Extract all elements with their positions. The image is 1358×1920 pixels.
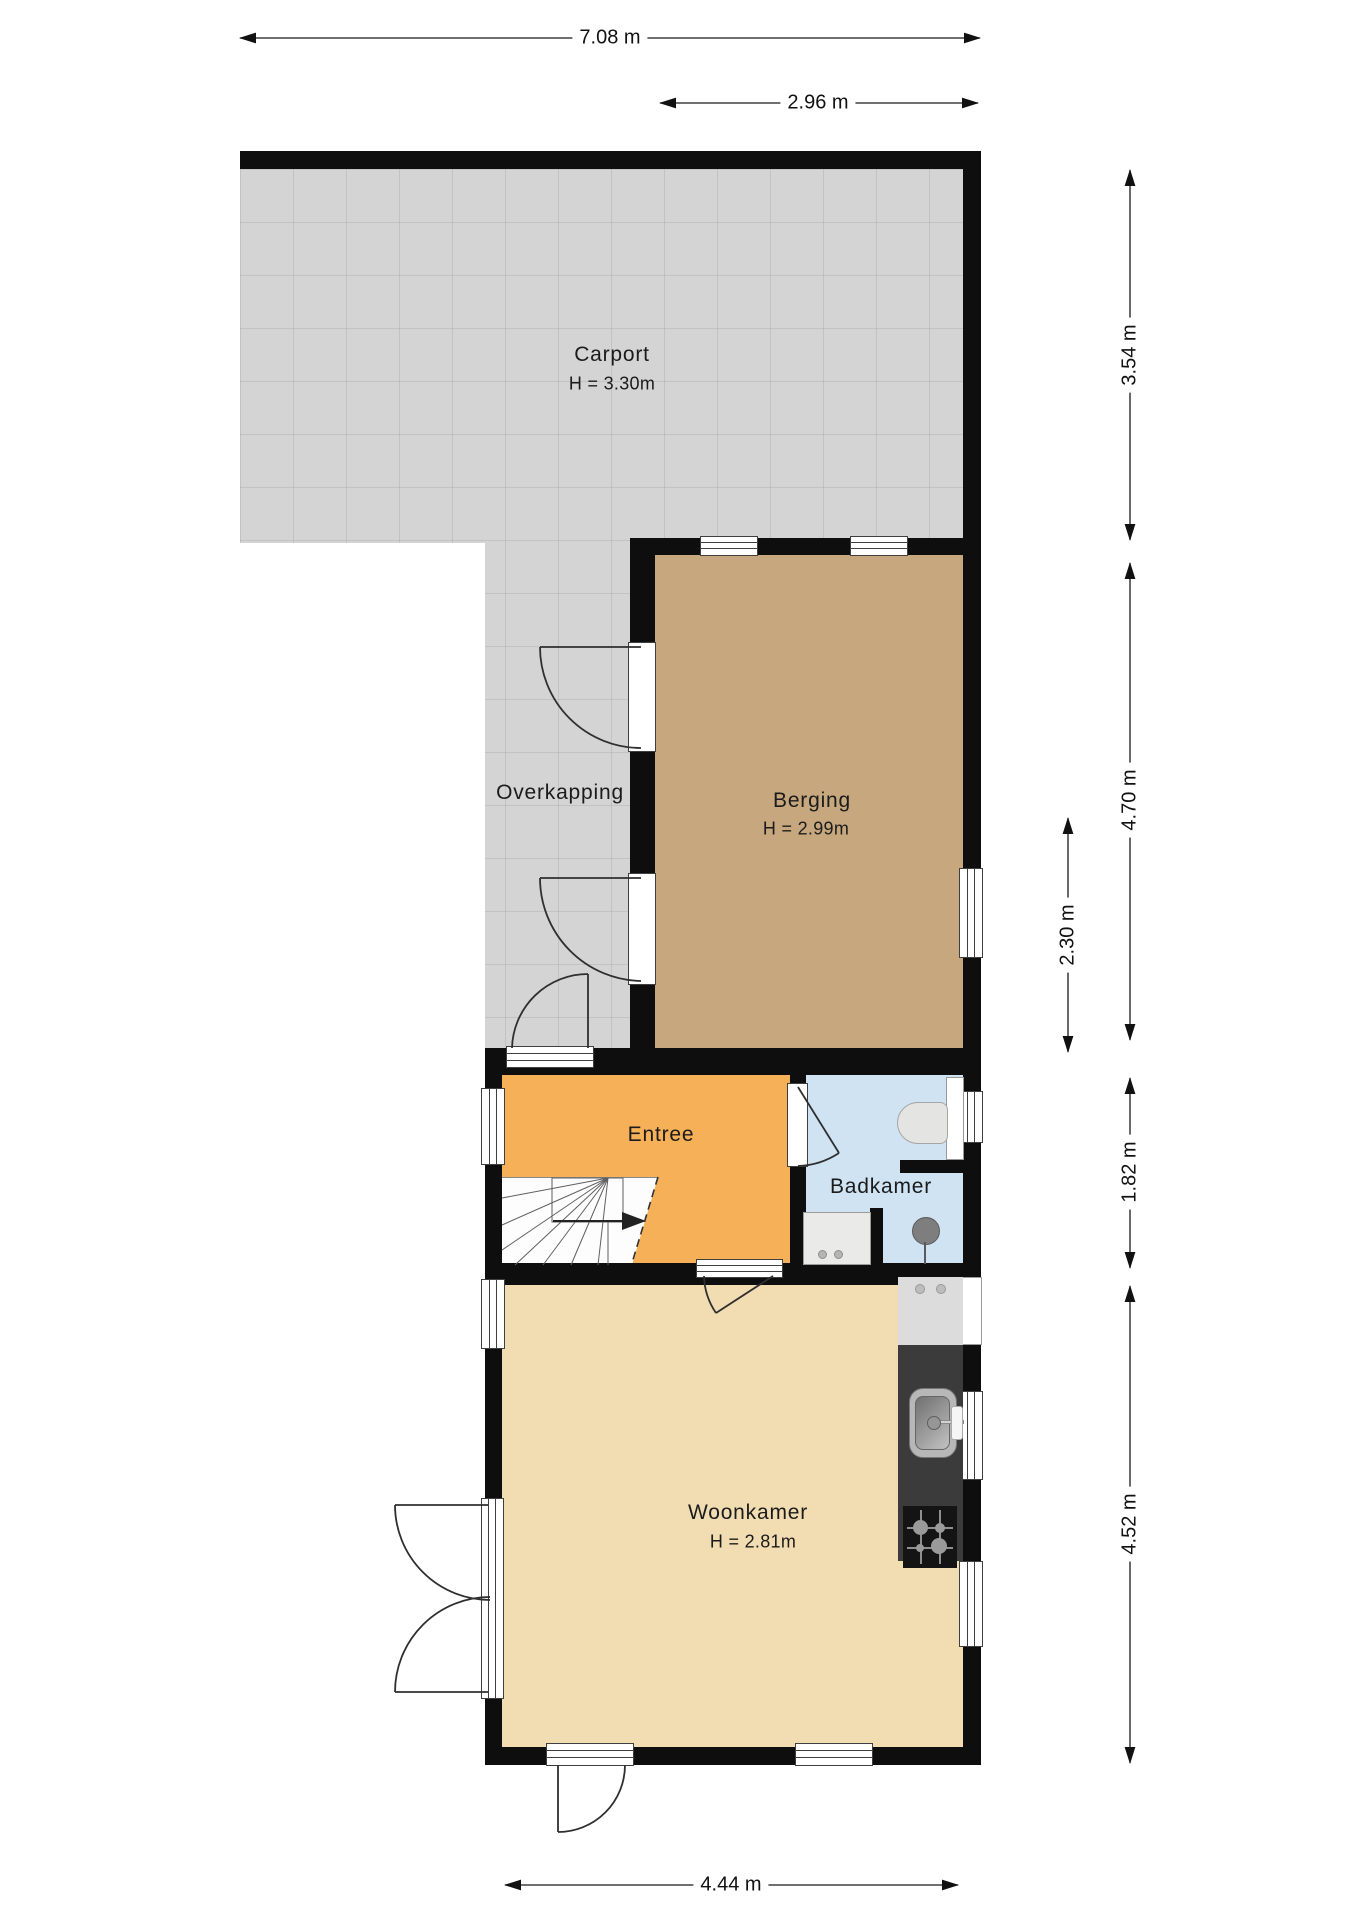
dim-woonkamer-depth: 4.52 m bbox=[1119, 1486, 1142, 1561]
toilet-cistern bbox=[946, 1077, 964, 1160]
stove-burner-1 bbox=[913, 1520, 928, 1535]
label-woonkamer: Woonkamer bbox=[688, 1501, 808, 1525]
label-entree: Entree bbox=[628, 1123, 695, 1147]
kitchen-faucet-dot-2 bbox=[936, 1284, 946, 1294]
wall-sink-stub bbox=[870, 1208, 883, 1265]
door-frame-front bbox=[506, 1046, 594, 1068]
door-frame-badkamer bbox=[787, 1083, 808, 1167]
dim-berging-depth: 4.70 m bbox=[1119, 762, 1142, 837]
dim-berging-inner: 2.30 m bbox=[1057, 897, 1080, 972]
wall-berging-left bbox=[630, 538, 655, 1075]
double-door-swing bbox=[395, 1505, 490, 1692]
door-frame-berging-1 bbox=[628, 642, 656, 752]
wall-top bbox=[240, 151, 981, 169]
door-woonkamer-bottom-swing bbox=[558, 1765, 625, 1832]
kitchen-faucet-icon bbox=[927, 1416, 941, 1430]
toilet-bowl-icon bbox=[897, 1102, 948, 1144]
window-woonkamer-bottom bbox=[795, 1743, 873, 1766]
stove-burner-4 bbox=[931, 1538, 947, 1554]
washbasin-faucet-1 bbox=[818, 1250, 827, 1259]
stove-grate-v1 bbox=[920, 1510, 922, 1564]
dim-total-width: 7.08 m bbox=[572, 27, 647, 50]
door-frame-double-doors bbox=[481, 1498, 504, 1699]
window-woonkamer-right bbox=[959, 1561, 983, 1647]
window-berging-top-1 bbox=[700, 536, 758, 556]
stove-icon bbox=[903, 1506, 957, 1568]
floorplan: 7.08 m 2.96 m 3.54 m 4.70 m 2.30 m 1.82 … bbox=[0, 0, 1358, 1920]
kitchen-faucet-dot-1 bbox=[915, 1284, 925, 1294]
kitchen-faucet-bracket bbox=[951, 1406, 963, 1440]
window-berging-top-2 bbox=[850, 536, 908, 556]
window-berging-right bbox=[959, 868, 983, 958]
kitchen-counter-light bbox=[898, 1277, 963, 1345]
washbasin-faucet-2 bbox=[834, 1250, 843, 1259]
dim-berging-width: 2.96 m bbox=[780, 92, 855, 115]
stove-burner-3 bbox=[916, 1544, 924, 1552]
stove-grate-v2 bbox=[939, 1510, 941, 1564]
label-carport-height: H = 3.30m bbox=[569, 374, 655, 395]
shower-drain-icon bbox=[912, 1217, 940, 1245]
label-overkapping: Overkapping bbox=[496, 781, 624, 805]
label-berging-height: H = 2.99m bbox=[763, 819, 849, 840]
door-frame-entree-woonkamer bbox=[696, 1259, 783, 1278]
stairs bbox=[502, 1177, 658, 1265]
window-entree-left bbox=[481, 1088, 505, 1165]
dim-carport-depth: 3.54 m bbox=[1119, 317, 1142, 392]
dim-woonkamer-width: 4.44 m bbox=[693, 1874, 768, 1897]
stove-burner-2 bbox=[935, 1523, 945, 1533]
label-badkamer: Badkamer bbox=[830, 1175, 932, 1199]
opening-kitchen-right bbox=[961, 1277, 982, 1345]
door-frame-berging-2 bbox=[628, 873, 656, 985]
label-carport: Carport bbox=[574, 343, 650, 367]
label-woonkamer-height: H = 2.81m bbox=[710, 1532, 796, 1553]
shower-drain-stem bbox=[924, 1242, 926, 1264]
label-berging: Berging bbox=[773, 789, 851, 813]
wall-berging-top bbox=[630, 538, 981, 555]
wall-toilet-stub bbox=[900, 1160, 963, 1173]
dim-badkamer-depth: 1.82 m bbox=[1119, 1134, 1142, 1209]
door-frame-woonkamer-bottom bbox=[546, 1743, 634, 1766]
window-woonkamer-left bbox=[481, 1279, 505, 1349]
